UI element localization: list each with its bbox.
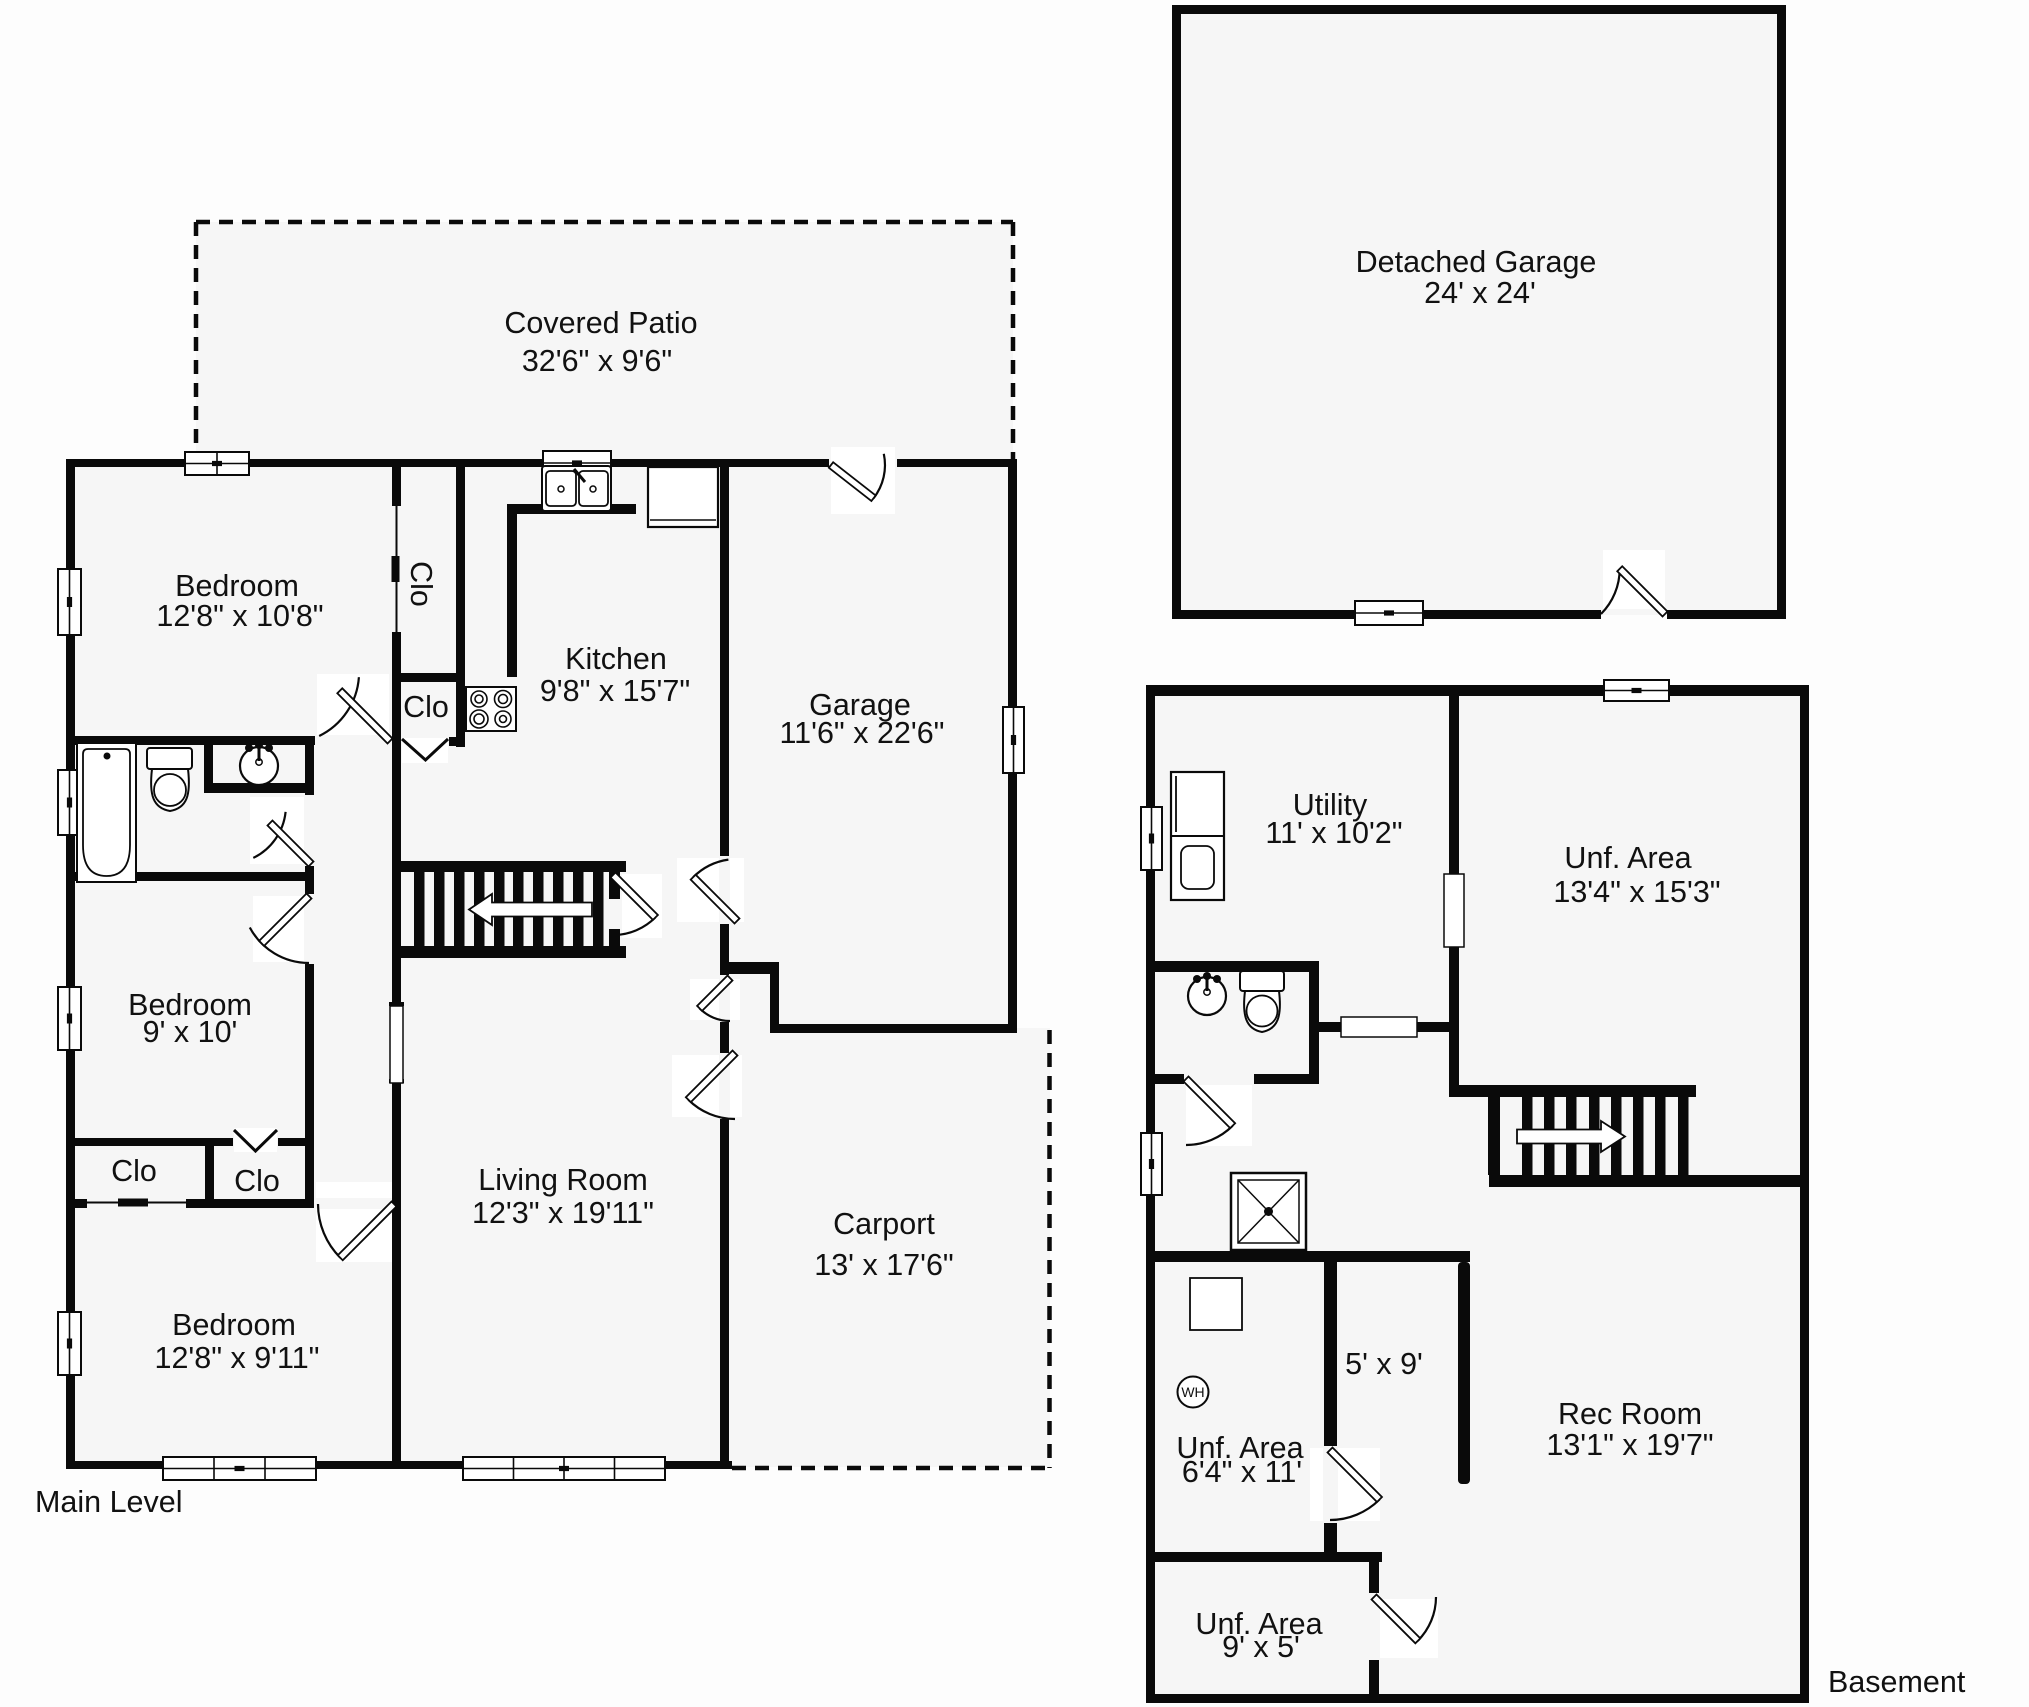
svg-text:5' x 9': 5' x 9'	[1345, 1347, 1423, 1381]
svg-text:Bedroom: Bedroom	[175, 569, 299, 603]
svg-text:Bedroom: Bedroom	[172, 1308, 296, 1342]
svg-text:13'1" x 19'7": 13'1" x 19'7"	[1546, 1428, 1713, 1462]
svg-text:Basement: Basement	[1828, 1665, 1966, 1699]
svg-text:Detached Garage: Detached Garage	[1356, 245, 1597, 279]
svg-text:Clo: Clo	[111, 1154, 157, 1188]
svg-text:12'8" x 9'11": 12'8" x 9'11"	[154, 1341, 319, 1375]
svg-text:Main Level: Main Level	[35, 1485, 183, 1519]
svg-text:12'8" x 10'8": 12'8" x 10'8"	[156, 599, 323, 633]
svg-text:12'3" x 19'11": 12'3" x 19'11"	[472, 1196, 654, 1230]
svg-text:11' x 10'2": 11' x 10'2"	[1265, 816, 1402, 850]
svg-text:Kitchen: Kitchen	[565, 642, 667, 676]
svg-text:9'8" x 15'7": 9'8" x 15'7"	[540, 674, 690, 708]
svg-text:24' x 24': 24' x 24'	[1424, 276, 1536, 310]
svg-text:Carport: Carport	[833, 1207, 935, 1241]
svg-text:WH: WH	[1181, 1384, 1204, 1400]
svg-text:Rec Room: Rec Room	[1558, 1397, 1702, 1431]
svg-text:Clo: Clo	[404, 561, 438, 607]
svg-text:13'4" x 15'3": 13'4" x 15'3"	[1553, 875, 1720, 909]
svg-text:6'4" x 11': 6'4" x 11'	[1182, 1455, 1302, 1489]
svg-text:13' x 17'6": 13' x 17'6"	[814, 1248, 953, 1282]
svg-text:9' x 5': 9' x 5'	[1222, 1630, 1300, 1664]
svg-text:Living Room: Living Room	[478, 1163, 648, 1197]
svg-text:32'6" x 9'6": 32'6" x 9'6"	[522, 344, 672, 378]
svg-text:11'6" x 22'6": 11'6" x 22'6"	[779, 716, 944, 750]
svg-text:Unf. Area: Unf. Area	[1564, 841, 1691, 875]
svg-text:9' x 10': 9' x 10'	[143, 1015, 238, 1049]
svg-text:Clo: Clo	[234, 1164, 280, 1198]
svg-text:Covered Patio: Covered Patio	[504, 306, 697, 340]
svg-text:Clo: Clo	[403, 690, 449, 724]
